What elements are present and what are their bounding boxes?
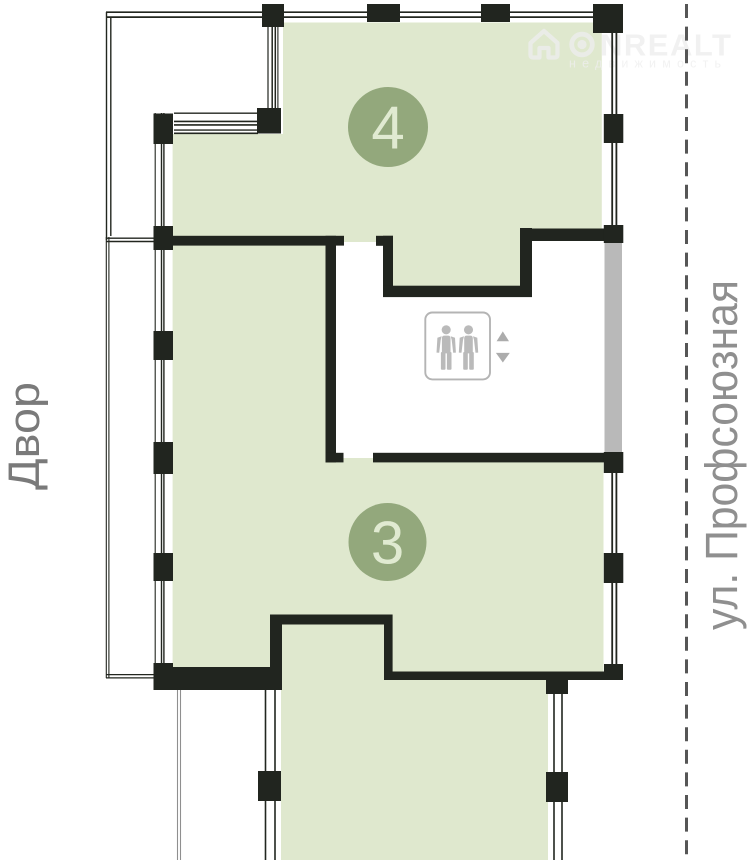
svg-text:Двор: Двор	[0, 382, 48, 490]
svg-text:ул. Профсоюзная: ул. Профсоюзная	[697, 280, 747, 630]
svg-text:3: 3	[371, 510, 404, 577]
svg-text:недвижимость: недвижимость	[569, 57, 727, 71]
svg-text:4: 4	[371, 95, 404, 162]
